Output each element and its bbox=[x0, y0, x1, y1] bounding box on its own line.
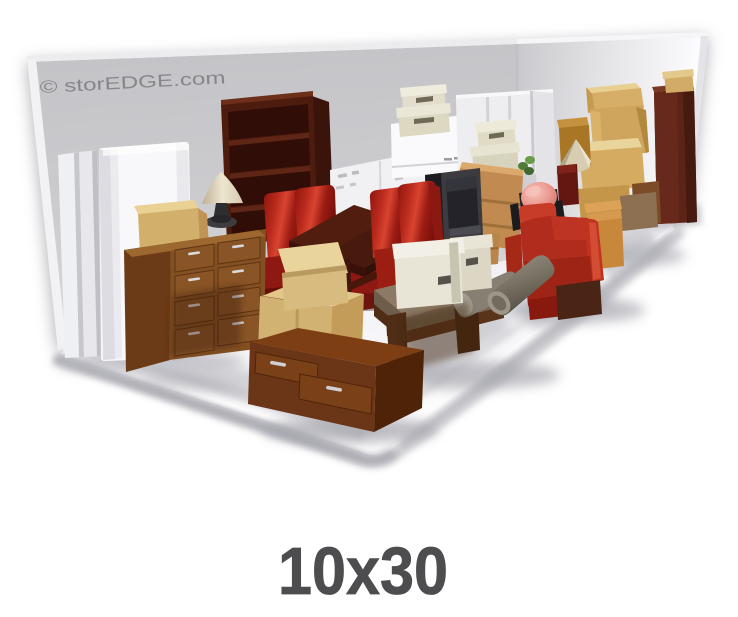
svg-text:10x30: 10x30 bbox=[278, 534, 448, 609]
